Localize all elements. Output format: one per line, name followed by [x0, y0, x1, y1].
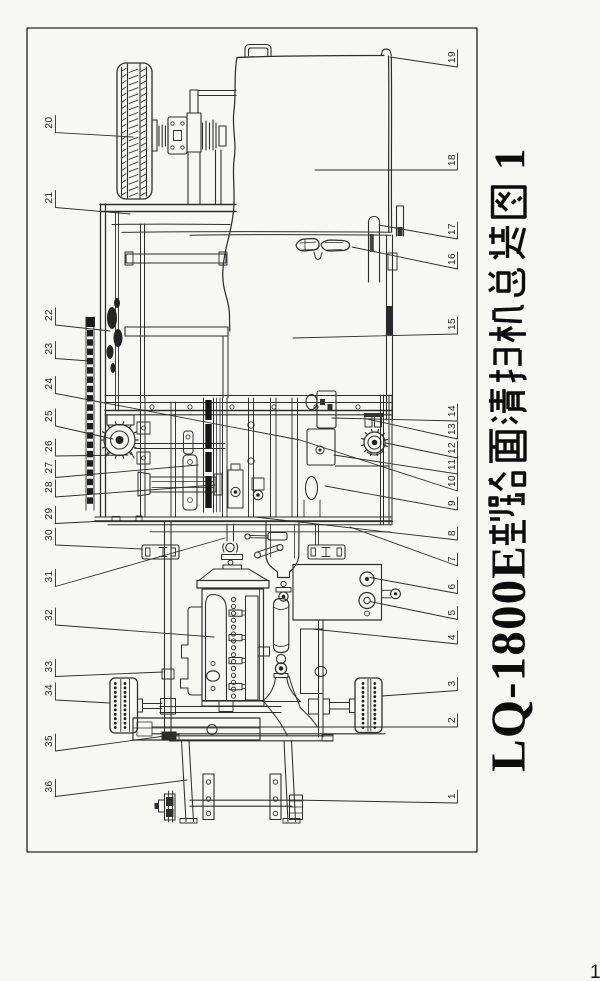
svg-text:LQ-1800E: LQ-1800E: [481, 546, 536, 772]
svg-text:13: 13: [447, 423, 458, 435]
svg-text:30: 30: [44, 529, 55, 541]
svg-text:29: 29: [44, 507, 55, 519]
svg-text:23: 23: [44, 342, 55, 354]
svg-text:19: 19: [447, 51, 458, 63]
svg-text:27: 27: [44, 461, 55, 473]
svg-text:4: 4: [447, 634, 458, 640]
svg-text:34: 34: [44, 684, 55, 696]
svg-text:36: 36: [44, 780, 55, 792]
svg-text:24: 24: [44, 377, 55, 389]
svg-text:26: 26: [44, 440, 55, 452]
svg-text:9: 9: [447, 500, 458, 506]
svg-text:35: 35: [44, 735, 55, 747]
svg-text:16: 16: [447, 253, 458, 265]
svg-text:3: 3: [447, 680, 458, 686]
svg-text:33: 33: [44, 660, 55, 672]
svg-text:28: 28: [44, 481, 55, 493]
svg-text:2: 2: [447, 717, 458, 723]
svg-text:21: 21: [44, 191, 55, 203]
svg-text:11: 11: [447, 459, 458, 470]
svg-text:1: 1: [487, 149, 534, 171]
svg-text:22: 22: [44, 309, 55, 321]
svg-text:17: 17: [447, 223, 458, 235]
svg-text:10: 10: [447, 475, 458, 487]
svg-text:31: 31: [44, 570, 55, 582]
svg-text:14: 14: [447, 405, 458, 417]
svg-text:15: 15: [447, 318, 458, 330]
svg-text:8: 8: [447, 530, 458, 536]
svg-text:20: 20: [44, 116, 55, 128]
svg-text:18: 18: [447, 154, 458, 166]
svg-text:1: 1: [447, 793, 458, 799]
svg-text:12: 12: [447, 442, 458, 454]
svg-text:6: 6: [447, 583, 458, 589]
svg-text:32: 32: [44, 609, 55, 621]
svg-text:7: 7: [447, 556, 458, 562]
svg-text:5: 5: [447, 609, 458, 615]
svg-text:1: 1: [590, 962, 600, 981]
svg-text:25: 25: [44, 410, 55, 422]
